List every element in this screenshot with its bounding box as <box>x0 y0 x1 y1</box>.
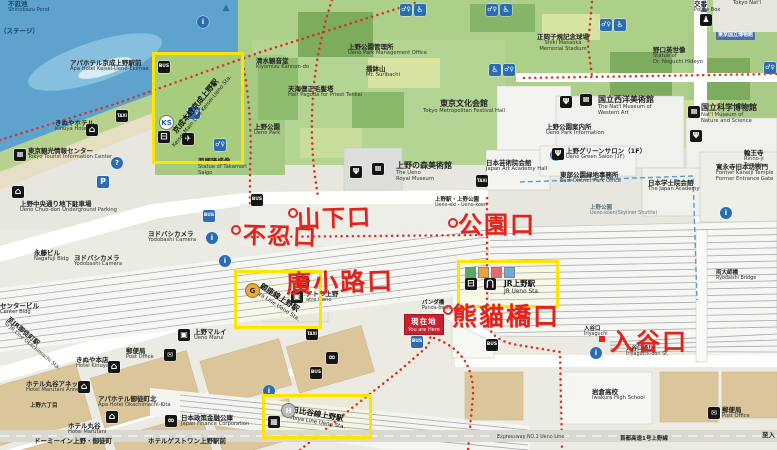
arrow-icon: ▲ <box>220 2 232 14</box>
shop-icon: ▣ <box>178 329 190 341</box>
hotel-icon: ⌂ <box>106 411 118 423</box>
station-hibiya: H▦日比谷線上野駅Hibiya Line Ueno Sta. <box>262 394 372 439</box>
koen-exit-annotation: 公園口 <box>458 205 536 240</box>
label-en: Mt. Suribachi <box>366 73 400 79</box>
label-en: Ryodaishi Bridge <box>716 276 756 281</box>
label-en: Shinobazu Pond <box>8 8 49 14</box>
label-japan-finance-corp: 日本政策金融公庫Japan Finance Corporation <box>181 415 269 428</box>
you-are-here-en: You are Here <box>408 327 440 333</box>
label-iwakura-high-school: 岩倉高校Iwakura High School <box>592 389 654 402</box>
you-are-here-badge: 現在地 You are Here <box>404 314 444 335</box>
label-jp: 東京国立博物館 <box>718 33 753 39</box>
label-tnm-sign: 東京国立博物館 <box>716 32 755 40</box>
station-name-en: Keisei Main Line Keisei-Ueno Sta. <box>171 74 233 148</box>
label-japan-academy: 日本学士院会館The Japan Academy <box>648 180 720 193</box>
label-center-bldg: センタービルCenter Bldg <box>0 303 39 316</box>
label-jp: 首都高速1号上野線 <box>620 436 668 442</box>
taxi-icon: TAXI <box>116 110 128 122</box>
label-green-salon: 上野グリーンサロン（1F）Ueno Green Salon (1F) <box>566 148 678 161</box>
ginza-line-logo: G <box>245 283 260 298</box>
label-dormy-inn: ドーミーイン上野・御徒町 <box>34 438 112 445</box>
label-east-park-office: 東部公園緑地事務所East District Park Office <box>560 172 648 185</box>
label-yodobashi-camera-2: ヨドバシカメラYodobashi Camera <box>74 255 122 268</box>
station-name: 京成本線京成上野駅Keisei Main Line Keisei-Ueno St… <box>163 67 233 148</box>
info-icon: i <box>720 207 732 219</box>
label-ueno-royal-museum: 上野の森美術館The Ueno Royal Museum <box>396 162 458 183</box>
shinkansen-icon: ⋂ <box>484 278 496 290</box>
label-en: Ueno-koen(Skyliner Shuttle) <box>590 211 657 216</box>
label-en: The Nat'l Museum of Western Art <box>598 105 670 117</box>
label-art-academy-hall: 日本芸術院会館Japan Art Academy Hall <box>486 160 558 173</box>
bus-icon: BUS <box>486 339 498 351</box>
shinobazu-exit-annotation: 不忍口 <box>242 216 318 253</box>
label-en: The Ueno Royal Museum <box>396 171 458 183</box>
info-icon: i <box>219 255 231 267</box>
label-en: Japan Finance Corporation <box>181 422 269 428</box>
label-hair-pagoda: 天海僧正毛髪塔Hair Pagoda for Priest Tenkai <box>288 86 376 99</box>
parking-icon: P <box>97 176 109 188</box>
label-en: Ueno Park Management Office <box>348 51 440 57</box>
label-shinobazu-pond: 不忍池Shinobazu Pond <box>8 1 49 14</box>
info-icon: i <box>197 16 209 28</box>
label-kinuya-honten: きぬや本店Hotel Kinuya <box>76 357 109 370</box>
label-en: Japan Art Academy Hall <box>486 167 558 173</box>
bus-blue-icon: BUS <box>411 336 423 348</box>
label-skyliner-stop: 上野公園Ueno-koen(Skyliner Shuttle) <box>590 205 657 217</box>
museum-icon: Ⅲ <box>372 163 384 175</box>
info-icon: i <box>206 232 218 244</box>
museum-icon: Ⅲ <box>688 106 700 118</box>
label-shiki-stadium: 正岡子規記念球場Shiki Masaoka Memorial Stadium <box>524 34 602 53</box>
toilet-icon: ♂♀ <box>503 64 515 76</box>
platform-chip <box>504 267 515 278</box>
you-are-here-jp: 現在地 <box>408 316 440 327</box>
label-jp: （ステージ） <box>0 28 39 35</box>
label-en: Kinuya Hotel <box>55 127 94 133</box>
label-en: Yodobashi Camera <box>148 238 196 244</box>
gate-icon: ▦ <box>268 416 280 428</box>
station-name: 日比谷線上野駅Hibiya Line Ueno Sta. <box>286 403 347 430</box>
hibiya-line-logo: H <box>281 403 296 418</box>
label-en: Hotel Marutani Annex <box>26 388 104 394</box>
bus-icon: BUS <box>158 61 170 73</box>
label-jp: 至入 <box>762 432 775 439</box>
station-name-jp: 京成本線京成上野駅 <box>163 67 229 144</box>
exit-marker <box>443 305 453 315</box>
bus-blue-icon: BUS <box>203 210 215 222</box>
label-en: Hotel Kinuya <box>76 364 109 370</box>
label-jp: 上野六丁目 <box>30 403 58 409</box>
label-post-office-right: 郵便局Post Office <box>722 407 750 420</box>
exit-marker <box>448 218 458 228</box>
label-en: Ueno Green Salon (1F) <box>566 155 678 161</box>
label-en: Iwakura High School <box>592 396 654 402</box>
taxi-icon: TAXI <box>306 328 318 340</box>
toilet-icon: ♂♀ <box>486 4 498 16</box>
restaurant-icon: Ψ <box>350 166 362 178</box>
toilet-icon: ♂♀ <box>764 62 776 74</box>
museum-icon: Ⅲ <box>580 94 592 106</box>
label-en: Post Office <box>722 414 750 420</box>
station-name-en: JR Ueno Sta. <box>504 289 540 295</box>
label-park-information: 上野公園案内所Ueno Park Information <box>546 124 618 137</box>
wheelchair-icon: ♿ <box>614 19 626 31</box>
wheelchair-icon: ♿ <box>489 64 501 76</box>
label-en: Kiyomizu Kannon-do <box>256 65 314 71</box>
label-en: Yodobashi Camera <box>74 262 122 268</box>
label-en: Former Kaneiji Temple Former Entrance Ga… <box>716 171 777 183</box>
restaurant-icon: Ψ <box>552 148 564 160</box>
post-icon: ✉ <box>164 349 176 361</box>
station-keisei: KSBUS♂♀⊟✈♂♀京成本線京成上野駅Keisei Main Line Kei… <box>152 52 244 164</box>
label-nagafuji-bldg: 永藤ビルNagafuji Bldg <box>34 250 69 263</box>
exit-marker <box>288 208 298 218</box>
label-ryodaishi-bridge: 両大師橋Ryodaishi Bridge <box>716 270 756 282</box>
label-ueno-park: 上野公園Ueno Park <box>254 124 280 137</box>
label-festival-hall: 東京文化会館Tokyo Metropolitan Festival Hall <box>405 100 523 115</box>
label-kinuya-hotel: きぬやホテルKinuya Hotel <box>55 120 94 133</box>
label-park-management-office: 上野公園管理所Ueno Park Management Office <box>348 44 440 57</box>
label-en: Ueno Park Information <box>546 131 618 137</box>
bicycle-icon: ∞ <box>326 352 338 364</box>
label-en: Statue of Dr. Noguchi Hideyo <box>653 54 715 66</box>
label-tourist-info-center: 東京観光情報センターTokyo Tourist Information Cent… <box>28 148 123 161</box>
post-icon: ✉ <box>708 407 720 419</box>
museum-icon: Ⅲ <box>14 149 26 161</box>
exit-marker <box>599 336 605 342</box>
label-kiyomizu-kannondo: 清水観音堂Kiyomizu Kannon-do <box>256 58 314 71</box>
toilet-icon: ♂♀ <box>400 4 412 16</box>
label-en: Center Bldg <box>0 310 39 316</box>
label-en: Ueno Chuo-dori Underground Parking <box>20 208 128 214</box>
label-en: Post Office <box>126 355 154 361</box>
platform-chip <box>491 267 502 278</box>
label-chuo-underground-parking: 上野中央通り地下駐車場Ueno Chuo-dori Underground Pa… <box>20 201 128 214</box>
police-icon: ♟ <box>700 14 712 26</box>
panda-bridge-exit-annotation: 熊貓橋口 <box>452 297 560 333</box>
label-kaneiji-gate: 寛永寺旧本坊表門Former Kaneiji Temple Former Ent… <box>716 164 777 183</box>
label-western-art-museum: 国立西洋美術館The Nat'l Museum of Western Art <box>598 96 670 117</box>
station-name-jp: JR上野駅 <box>504 278 540 289</box>
label-expressway-en: Expressway NO.1 Ueno Line <box>497 435 564 440</box>
hotel-icon: ⌂ <box>108 361 120 373</box>
hotel-icon: ⌂ <box>12 186 24 198</box>
keisei-line-logo: KS <box>159 115 174 130</box>
label-post-office-left: 郵便局Post Office <box>126 348 154 361</box>
label-stage: （ステージ） <box>0 28 39 35</box>
label-en: Ueno Marui <box>194 336 227 342</box>
info-icon: i <box>590 347 602 359</box>
ueno-station-area-map: 不忍池Shinobazu Pond（ステージ）アパホテル京成上野駅前Apa Ho… <box>0 0 777 450</box>
platform-chips <box>465 267 515 278</box>
label-noguchi-statue: 野口英世像Statue of Dr. Noguchi Hideyo <box>653 47 715 66</box>
label-en: East District Park Office <box>560 179 648 185</box>
label-en: Nagafuji Bldg <box>34 257 69 263</box>
label-en: Apa Hotel Okachimachi-Kita <box>98 403 194 409</box>
toilet-icon: ♂♀ <box>214 139 226 151</box>
label-ueno-6chome: 上野六丁目 <box>30 403 58 409</box>
label-apa-okachimachi: アパホテル御徒町北Apa Hotel Okachimachi-Kita <box>98 396 194 409</box>
label-mt-suribachi: 擂鉢山Mt. Suribachi <box>366 66 400 79</box>
restaurant-icon: Ψ <box>560 96 572 108</box>
label-jp: ホテルゲストワン上野駅前 <box>148 438 226 445</box>
label-en: Statue of Takamori Saigo <box>198 165 260 177</box>
label-en: Tokyo Tourist Information Center <box>28 155 123 161</box>
restaurant-icon: Ψ <box>690 130 702 142</box>
label-yodobashi-camera-1: ヨドバシカメラYodobashi Camera <box>148 231 196 244</box>
bus-icon: BUS <box>310 367 322 379</box>
label-science-museum: 国立科学博物館Nat'l Museum of Nature and Scienc… <box>701 104 767 125</box>
label-en: Shiki Masaoka Memorial Stadium <box>524 41 602 53</box>
label-en: Hotel Marutani <box>68 430 106 436</box>
label-marutani-annex: ホテル丸谷アネックスHotel Marutani Annex <box>26 381 104 394</box>
wheelchair-icon: ♿ <box>414 4 426 16</box>
label-hotel-marutani: ホテル丸谷Hotel Marutani <box>68 423 106 436</box>
label-en: Expressway NO.1 Ueno Line <box>497 435 564 440</box>
wheelchair-icon: ♿ <box>500 4 512 16</box>
platform-chip <box>478 267 489 278</box>
label-ueno-marui: 上野マルイUeno Marui <box>194 329 227 342</box>
bus-icon: BUS <box>251 194 263 206</box>
bicycle-icon: ∞ <box>165 415 177 427</box>
iriya-exit-annotation: 入谷口 <box>610 322 688 357</box>
label-en: Tokyo Metropolitan Festival Hall <box>405 109 523 115</box>
label-en: Hair Pagoda for Priest Tenkai <box>288 93 376 99</box>
label-tokyo-natl-corner: Tokyo Nat'l <box>733 1 761 7</box>
train-icon: ⊟ <box>465 278 477 290</box>
label-en: The Japan Academy <box>648 187 720 193</box>
label-jp: ドーミーイン上野・御徒町 <box>34 438 112 445</box>
toilet-icon: ♂♀ <box>600 19 612 31</box>
exit-marker <box>231 225 241 235</box>
label-police-box: 交番Police Box <box>694 1 720 14</box>
label-to-iriya: 至入 <box>762 432 775 439</box>
hirokoji-exit-annotation: 廣小路口 <box>285 261 394 301</box>
label-hotel-guest-one: ホテルゲストワン上野駅前 <box>148 438 226 445</box>
label-en: Police Box <box>694 8 720 14</box>
taxi-icon: TAXI <box>476 175 488 187</box>
label-expressway-jp: 首都高速1号上野線 <box>620 436 668 442</box>
label-en: Ueno Park <box>254 131 280 137</box>
station-name: JR上野駅JR Ueno Sta. <box>504 278 540 295</box>
label-en: Tokyo Nat'l <box>733 1 761 7</box>
platform-chip <box>465 267 476 278</box>
label-en: Nat'l Museum of Nature and Science <box>701 113 767 125</box>
